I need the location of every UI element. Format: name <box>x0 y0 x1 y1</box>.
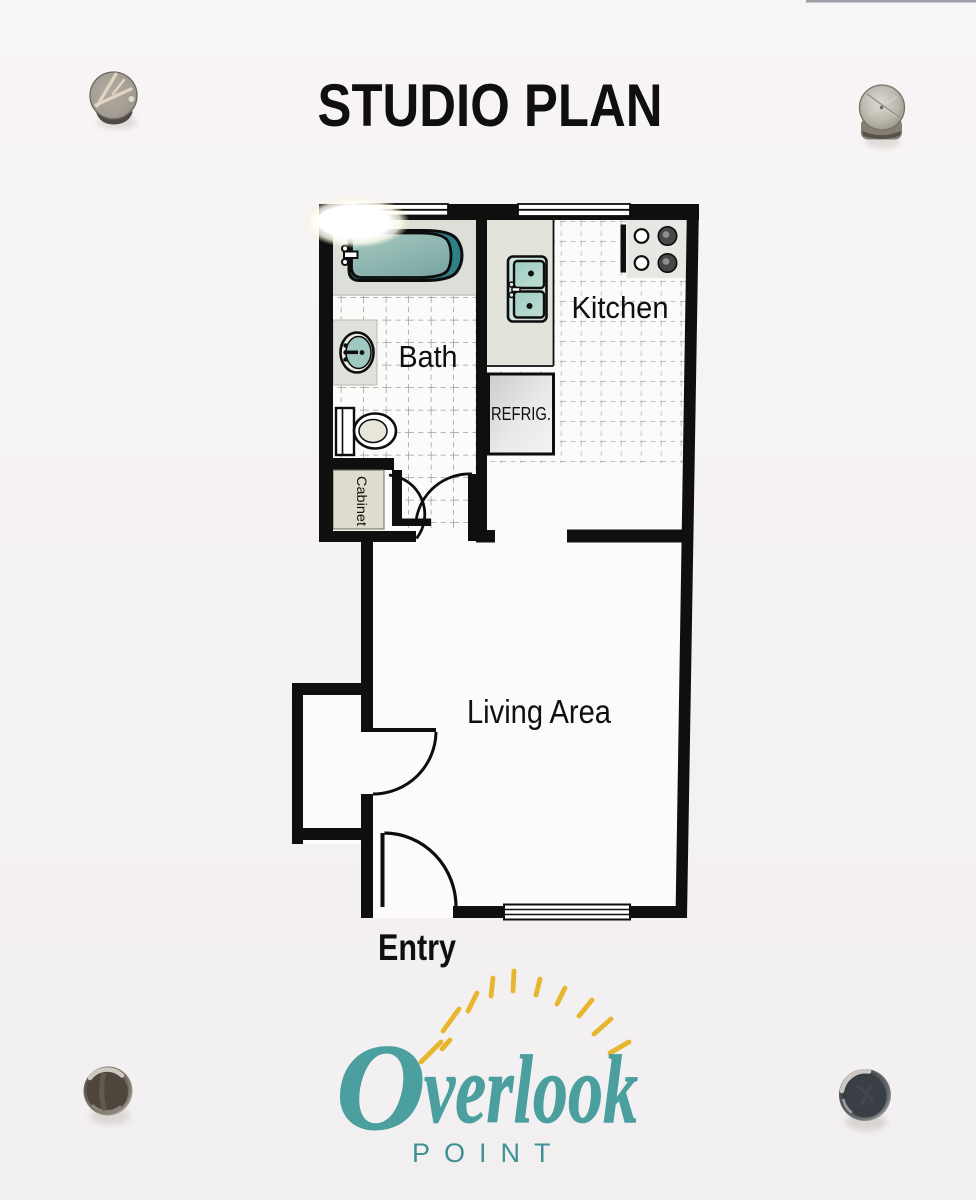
svg-text:Bath: Bath <box>399 339 458 374</box>
svg-text:Entry: Entry <box>378 927 456 968</box>
svg-text:Living Area: Living Area <box>467 693 612 730</box>
svg-text:POINT: POINT <box>412 1138 565 1168</box>
svg-text:Kitchen: Kitchen <box>572 290 669 325</box>
svg-text:Cabinet: Cabinet <box>354 476 369 526</box>
svg-text:verlook: verlook <box>424 1036 638 1144</box>
svg-text:REFRIG.: REFRIG. <box>491 404 551 424</box>
svg-text:O: O <box>336 1019 426 1156</box>
svg-text:STUDIO PLAN: STUDIO PLAN <box>318 72 663 139</box>
